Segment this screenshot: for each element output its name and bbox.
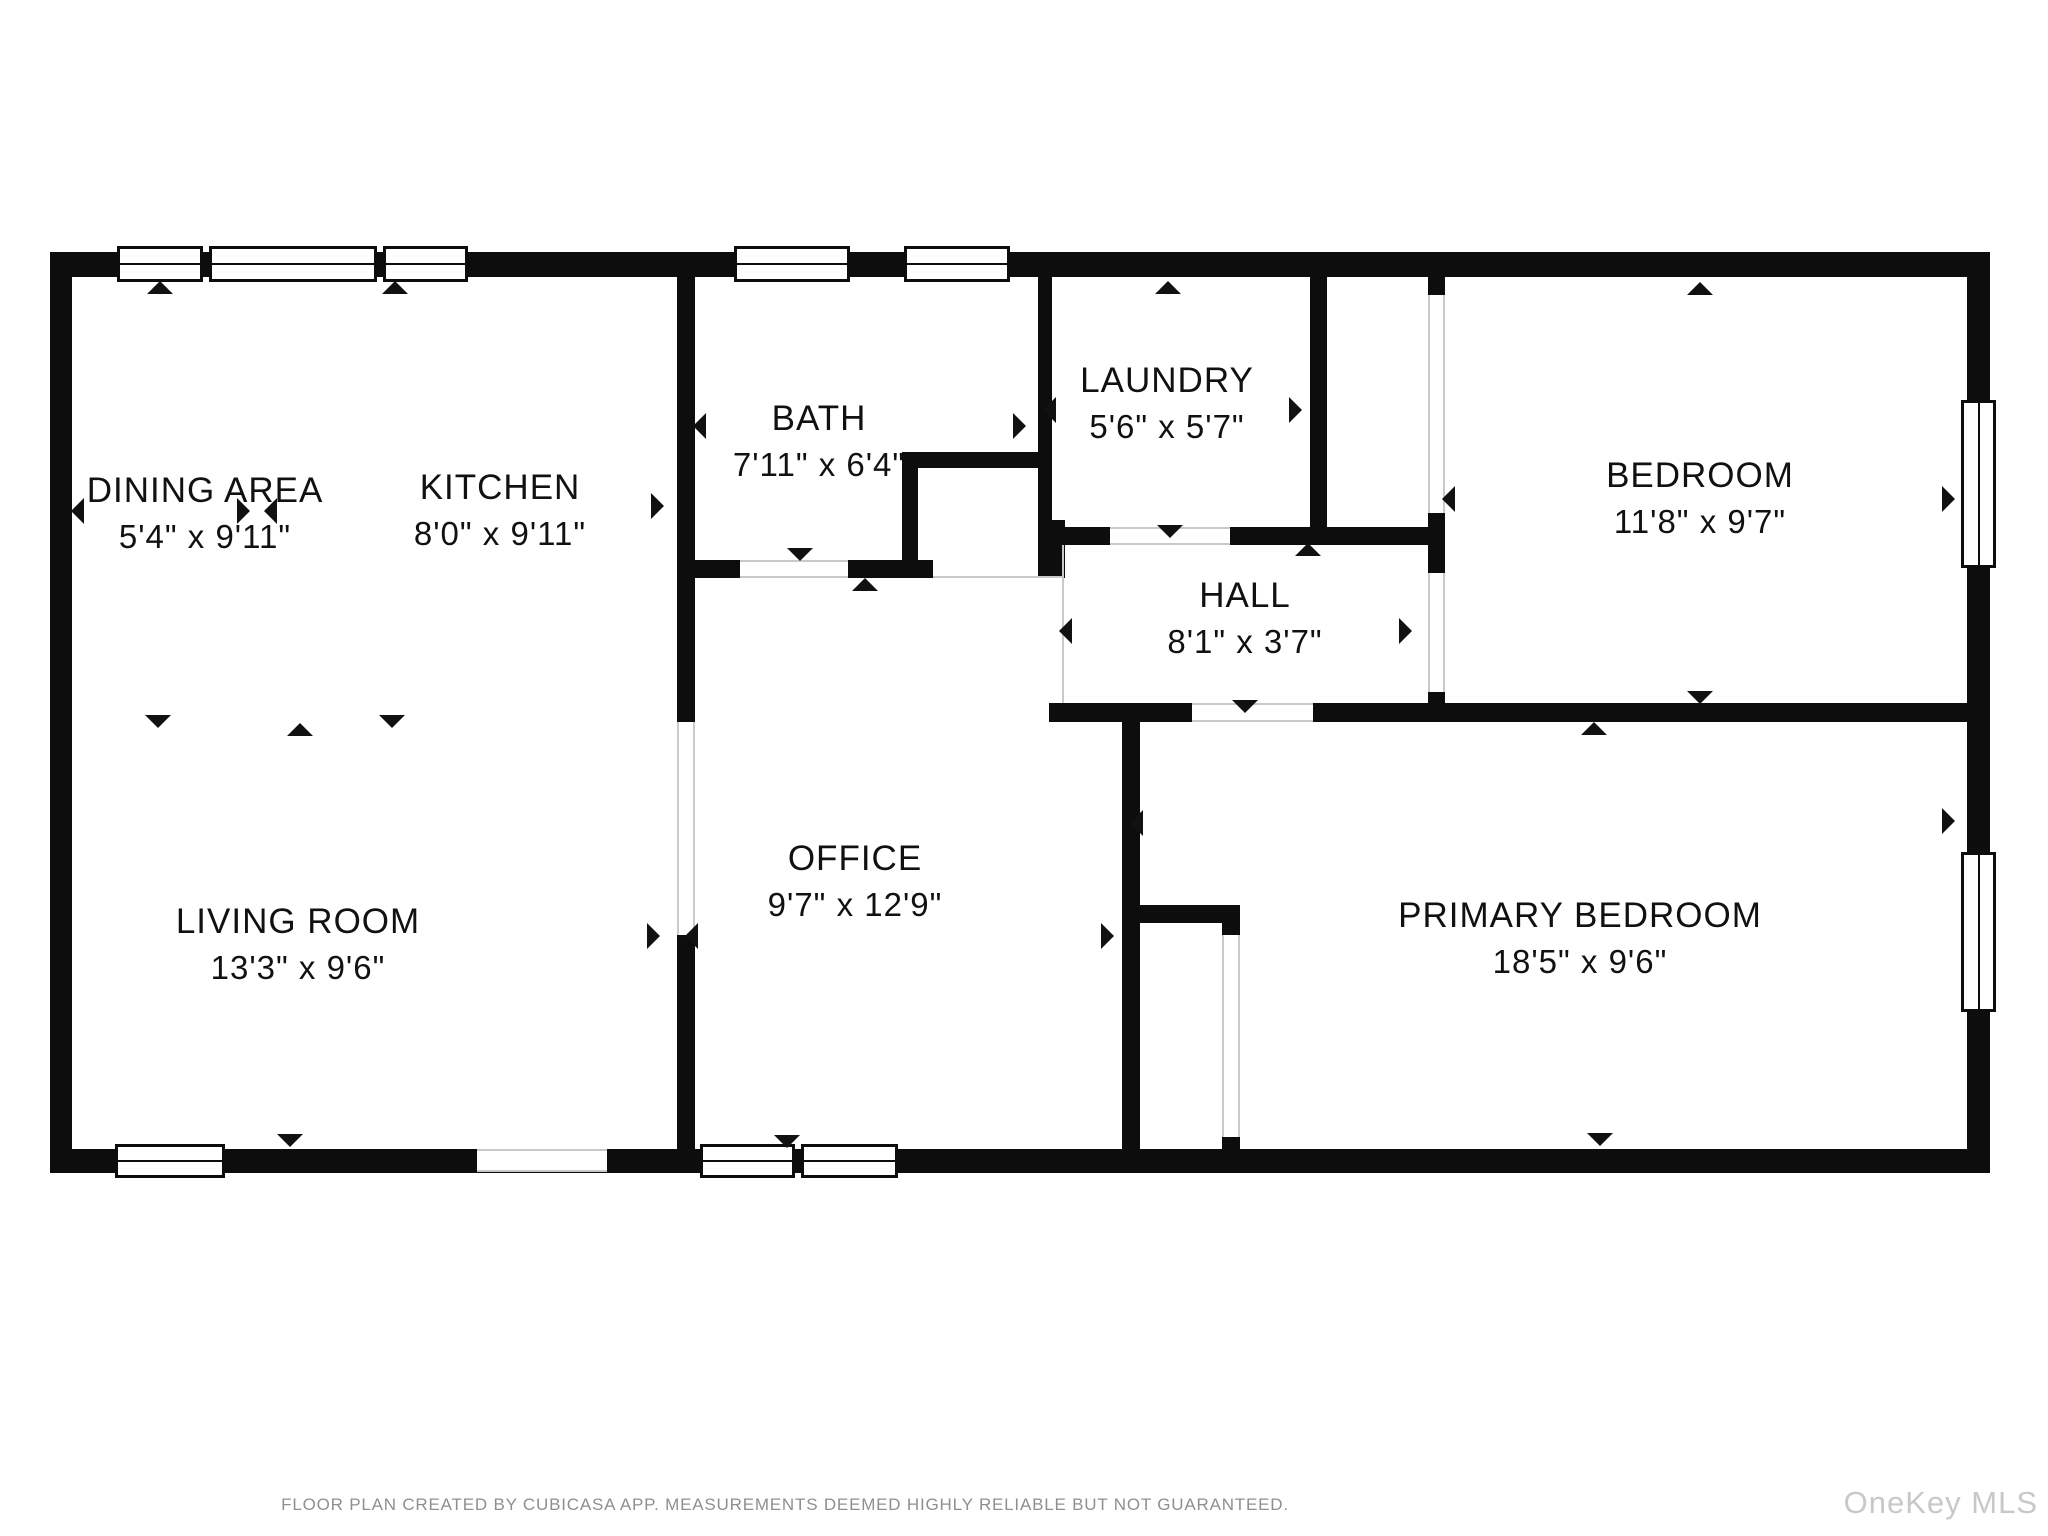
window-pane-line xyxy=(211,263,375,265)
measure-arrow-left xyxy=(71,498,84,524)
measure-arrow-left xyxy=(693,413,706,439)
office-window-2 xyxy=(801,1144,898,1178)
measure-arrow-down xyxy=(145,715,171,728)
measure-arrow-up xyxy=(147,281,173,294)
measure-arrow-up xyxy=(287,723,313,736)
entry-opening xyxy=(477,1149,607,1172)
alcove-top xyxy=(902,452,1052,468)
bath-window-1 xyxy=(734,246,850,282)
measure-arrow-up xyxy=(1581,722,1607,735)
room-dimensions: 8'0" x 9'11" xyxy=(414,511,586,557)
measure-arrow-up xyxy=(382,281,408,294)
measure-arrow-right xyxy=(647,923,660,949)
dining-window-2 xyxy=(209,246,377,282)
window-pane-line xyxy=(803,1160,896,1162)
hall-top-left xyxy=(1038,527,1110,545)
floor-plan: DINING AREA5'4" x 9'11"KITCHEN8'0" x 9'1… xyxy=(0,0,2048,1536)
room-label-office: OFFICE9'7" x 12'9" xyxy=(768,836,943,928)
bedroom-primary-divider xyxy=(1313,703,1967,722)
room-dimensions: 7'11" x 6'4" xyxy=(733,442,905,488)
room-label-kitchen: KITCHEN8'0" x 9'11" xyxy=(414,465,586,557)
room-name: LAUNDRY xyxy=(1080,358,1254,404)
window-pane-line xyxy=(906,263,1008,265)
footer-disclaimer: FLOOR PLAN CREATED BY CUBICASA APP. MEAS… xyxy=(281,1495,1289,1515)
outer-left xyxy=(50,252,72,1172)
office-primary-wall xyxy=(1122,722,1140,1149)
measure-arrow-down xyxy=(1587,1133,1613,1146)
bath-bottom-left xyxy=(695,560,740,578)
window-pane-line xyxy=(1978,854,1980,1010)
dining-window-1 xyxy=(117,246,203,282)
measure-arrow-down xyxy=(379,715,405,728)
room-dimensions: 8'1" x 3'7" xyxy=(1167,619,1322,665)
measure-arrow-left xyxy=(1130,810,1143,836)
kitchen-window xyxy=(383,246,468,282)
measure-arrow-down xyxy=(277,1134,303,1147)
outer-bottom xyxy=(50,1149,1990,1173)
measure-arrow-left xyxy=(1442,486,1455,512)
living-window xyxy=(115,1144,225,1178)
room-label-bath: BATH7'11" x 6'4" xyxy=(733,396,905,488)
measure-arrow-up xyxy=(1687,282,1713,295)
living-office-wall xyxy=(677,935,695,1149)
office-top-boundary xyxy=(933,576,1063,578)
kitchen-bath-wall xyxy=(677,277,695,722)
bath-bottom-right xyxy=(848,560,933,578)
measure-arrow-right xyxy=(1289,397,1302,423)
room-name: LIVING ROOM xyxy=(176,899,420,945)
room-label-laundry: LAUNDRY5'6" x 5'7" xyxy=(1080,358,1254,450)
primary-closet-door xyxy=(1222,935,1240,1137)
window-pane-line xyxy=(736,263,848,265)
measure-arrow-right xyxy=(651,493,664,519)
measure-arrow-left xyxy=(1043,397,1056,423)
living-office-opening xyxy=(677,722,695,935)
measure-arrow-right xyxy=(1942,486,1955,512)
hall-top-right xyxy=(1230,527,1428,545)
measure-arrow-left xyxy=(685,923,698,949)
measure-arrow-up xyxy=(852,578,878,591)
bedroom-closet-opening xyxy=(1428,295,1445,513)
measure-arrow-down xyxy=(774,1135,800,1148)
measure-arrow-down xyxy=(787,548,813,561)
measure-arrow-down xyxy=(1232,700,1258,713)
primary-window xyxy=(1961,852,1996,1012)
room-name: HALL xyxy=(1167,573,1322,619)
room-label-primary-bedroom: PRIMARY BEDROOM18'5" x 9'6" xyxy=(1398,893,1762,985)
window-pane-line xyxy=(1978,402,1980,566)
measure-arrow-up xyxy=(1295,543,1321,556)
measure-arrow-right xyxy=(1101,923,1114,949)
room-name: KITCHEN xyxy=(414,465,586,511)
closet-cap xyxy=(1222,923,1240,935)
window-pane-line xyxy=(117,1160,223,1162)
measure-arrow-down xyxy=(1687,691,1713,704)
room-label-living-room: LIVING ROOM13'3" x 9'6" xyxy=(176,899,420,991)
room-name: DINING AREA xyxy=(87,468,324,514)
room-label-bedroom: BEDROOM11'8" x 9'7" xyxy=(1606,453,1794,545)
room-name: PRIMARY BEDROOM xyxy=(1398,893,1762,939)
room-dimensions: 18'5" x 9'6" xyxy=(1398,939,1762,985)
measure-arrow-right xyxy=(1399,618,1412,644)
window-pane-line xyxy=(119,263,201,265)
measure-arrow-left xyxy=(1059,618,1072,644)
office-window-1 xyxy=(700,1144,795,1178)
room-dimensions: 5'6" x 5'7" xyxy=(1080,404,1254,450)
room-dimensions: 13'3" x 9'6" xyxy=(176,945,420,991)
room-name: BEDROOM xyxy=(1606,453,1794,499)
window-pane-line xyxy=(385,263,466,265)
laundry-right-wall xyxy=(1310,277,1327,545)
window-pane-line xyxy=(702,1160,793,1162)
room-dimensions: 9'7" x 12'9" xyxy=(768,882,943,928)
bath-door xyxy=(740,560,848,578)
bedroom-window xyxy=(1961,400,1996,568)
closet-top-wall xyxy=(1138,905,1240,923)
measure-arrow-right xyxy=(1013,413,1026,439)
measure-arrow-up xyxy=(1155,281,1181,294)
closet-stub xyxy=(1222,1137,1240,1149)
room-dimensions: 5'4" x 9'11" xyxy=(87,514,324,560)
measure-arrow-down xyxy=(1157,525,1183,538)
room-name: OFFICE xyxy=(768,836,943,882)
room-name: BATH xyxy=(733,396,905,442)
measure-arrow-right xyxy=(1942,808,1955,834)
hall-bedroom-door xyxy=(1428,573,1445,692)
watermark-logo: OneKey MLS xyxy=(1844,1485,2038,1521)
hall-bottom-left xyxy=(1049,703,1192,722)
room-label-dining-area: DINING AREA5'4" x 9'11" xyxy=(87,468,324,560)
bedroom-left-mid xyxy=(1428,513,1445,573)
bath-window-2 xyxy=(904,246,1010,282)
room-label-hall: HALL8'1" x 3'7" xyxy=(1167,573,1322,665)
outer-right xyxy=(1967,252,1990,1172)
room-dimensions: 11'8" x 9'7" xyxy=(1606,499,1794,545)
